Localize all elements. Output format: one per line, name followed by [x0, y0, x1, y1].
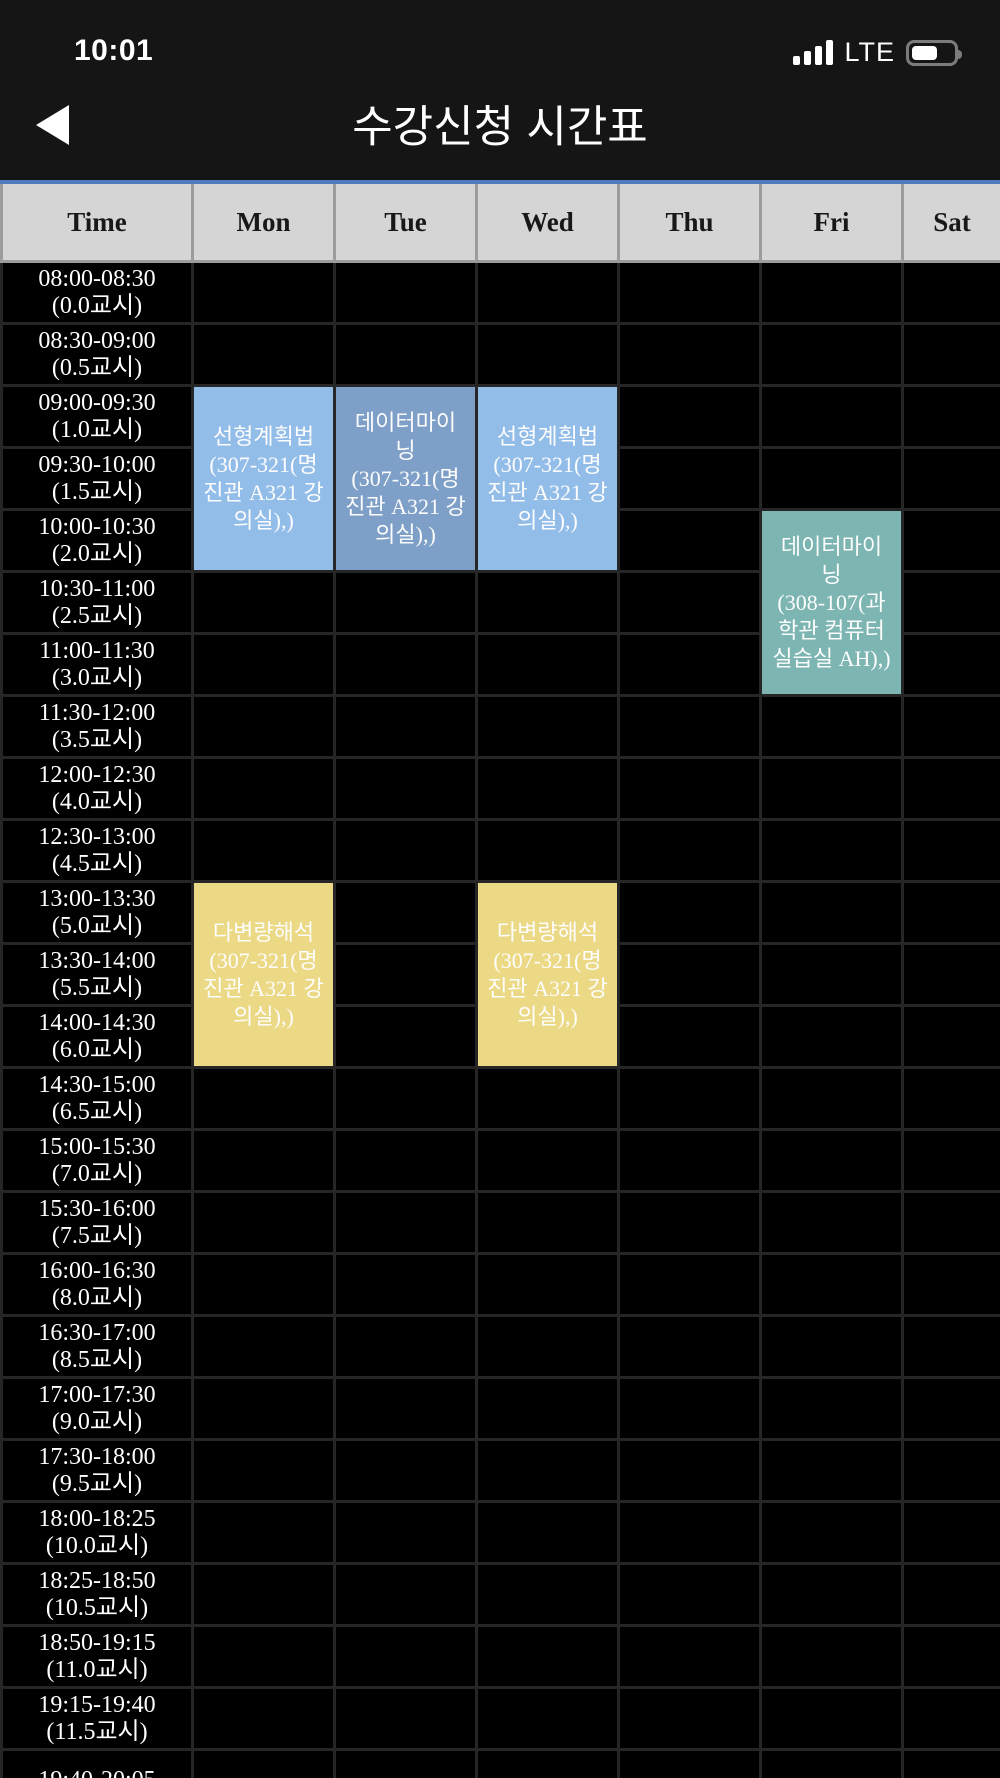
empty-cell — [193, 1564, 335, 1626]
time-range-label: 19:15-19:40 — [3, 1692, 191, 1719]
period-label: (7.5교시) — [3, 1223, 191, 1250]
empty-cell — [477, 1378, 619, 1440]
time-slot-cell: 18:00-18:25(10.0교시) — [2, 1502, 193, 1564]
status-bar: 10:01 LTE — [0, 0, 1000, 70]
empty-cell — [619, 1502, 761, 1564]
time-range-label: 13:00-13:30 — [3, 886, 191, 913]
period-label: (5.5교시) — [3, 975, 191, 1002]
empty-cell — [903, 1564, 1000, 1626]
time-range-label: 10:30-11:00 — [3, 576, 191, 603]
empty-cell — [619, 386, 761, 448]
empty-cell — [335, 1130, 477, 1192]
period-label: (7.0교시) — [3, 1161, 191, 1188]
empty-cell — [761, 696, 903, 758]
empty-cell — [619, 634, 761, 696]
empty-cell — [193, 696, 335, 758]
empty-cell — [619, 510, 761, 572]
time-slot-cell: 12:00-12:30(4.0교시) — [2, 758, 193, 820]
time-slot-cell: 10:00-10:30(2.0교시) — [2, 510, 193, 572]
empty-cell — [619, 1378, 761, 1440]
empty-cell — [335, 1192, 477, 1254]
time-slot-cell: 16:00-16:30(8.0교시) — [2, 1254, 193, 1316]
empty-cell — [903, 262, 1000, 324]
empty-cell — [477, 1750, 619, 1778]
course-title: 선형계획법 — [487, 423, 608, 451]
column-header-tue: Tue — [335, 182, 477, 262]
empty-cell — [903, 634, 1000, 696]
timetable-scroll-area[interactable]: TimeMonTueWedThuFriSat 08:00-08:30(0.0교시… — [0, 180, 1000, 1778]
period-label: (10.5교시) — [3, 1595, 191, 1622]
empty-cell — [903, 448, 1000, 510]
column-header-mon: Mon — [193, 182, 335, 262]
empty-cell — [619, 1006, 761, 1068]
empty-cell — [903, 1316, 1000, 1378]
time-slot-cell: 09:00-09:30(1.0교시) — [2, 386, 193, 448]
time-slot-cell: 09:30-10:00(1.5교시) — [2, 448, 193, 510]
empty-cell — [619, 696, 761, 758]
column-header-wed: Wed — [477, 182, 619, 262]
period-label: (4.0교시) — [3, 789, 191, 816]
empty-cell — [335, 262, 477, 324]
empty-cell — [903, 1378, 1000, 1440]
period-label: (10.0교시) — [3, 1533, 191, 1560]
empty-cell — [193, 1254, 335, 1316]
empty-cell — [903, 1006, 1000, 1068]
empty-cell — [903, 696, 1000, 758]
time-range-label: 09:00-09:30 — [3, 390, 191, 417]
empty-cell — [619, 882, 761, 944]
empty-cell — [903, 758, 1000, 820]
time-slot-cell: 12:30-13:00(4.5교시) — [2, 820, 193, 882]
period-label: (6.5교시) — [3, 1099, 191, 1126]
empty-cell — [761, 944, 903, 1006]
empty-cell — [477, 1254, 619, 1316]
empty-cell — [761, 1688, 903, 1750]
empty-cell — [477, 1626, 619, 1688]
empty-cell — [761, 1440, 903, 1502]
battery-icon — [906, 40, 958, 66]
empty-cell — [761, 758, 903, 820]
period-label: (4.5교시) — [3, 851, 191, 878]
empty-cell — [335, 1440, 477, 1502]
empty-cell — [903, 1502, 1000, 1564]
course-block[interactable]: 선형계획법(307-321(명진관 A321 강의실),) — [193, 386, 335, 572]
empty-cell — [193, 262, 335, 324]
empty-cell — [335, 1564, 477, 1626]
empty-cell — [619, 1254, 761, 1316]
empty-cell — [619, 1192, 761, 1254]
empty-cell — [477, 1564, 619, 1626]
empty-cell — [335, 1688, 477, 1750]
empty-cell — [477, 324, 619, 386]
empty-cell — [193, 1068, 335, 1130]
empty-cell — [761, 324, 903, 386]
column-header-time: Time — [2, 182, 193, 262]
empty-cell — [193, 1440, 335, 1502]
empty-cell — [477, 1316, 619, 1378]
period-label: (1.0교시) — [3, 417, 191, 444]
time-range-label: 11:00-11:30 — [3, 638, 191, 665]
empty-cell — [477, 634, 619, 696]
status-time: 10:01 — [74, 34, 153, 70]
empty-cell — [477, 758, 619, 820]
time-range-label: 18:00-18:25 — [3, 1506, 191, 1533]
empty-cell — [477, 820, 619, 882]
time-range-label: 13:30-14:00 — [3, 948, 191, 975]
period-label: (8.0교시) — [3, 1285, 191, 1312]
empty-cell — [193, 572, 335, 634]
empty-cell — [761, 1192, 903, 1254]
time-slot-cell: 13:30-14:00(5.5교시) — [2, 944, 193, 1006]
time-range-label: 15:30-16:00 — [3, 1196, 191, 1223]
empty-cell — [619, 758, 761, 820]
course-block[interactable]: 다변량해석(307-321(명진관 A321 강의실),) — [193, 882, 335, 1068]
empty-cell — [335, 820, 477, 882]
period-label: (0.0교시) — [3, 293, 191, 320]
empty-cell — [903, 572, 1000, 634]
course-block[interactable]: 다변량해석(307-321(명진관 A321 강의실),) — [477, 882, 619, 1068]
time-slot-cell: 11:30-12:00(3.5교시) — [2, 696, 193, 758]
time-range-label: 15:00-15:30 — [3, 1134, 191, 1161]
empty-cell — [619, 944, 761, 1006]
empty-cell — [619, 1068, 761, 1130]
time-slot-cell: 18:50-19:15(11.0교시) — [2, 1626, 193, 1688]
column-header-thu: Thu — [619, 182, 761, 262]
empty-cell — [193, 1750, 335, 1778]
empty-cell — [761, 1130, 903, 1192]
course-location: (308-107(과학관 컴퓨터실습실 AH),) — [771, 589, 892, 673]
time-range-label: 14:30-15:00 — [3, 1072, 191, 1099]
period-label: (6.0교시) — [3, 1037, 191, 1064]
time-slot-cell: 17:00-17:30(9.0교시) — [2, 1378, 193, 1440]
empty-cell — [335, 696, 477, 758]
empty-cell — [335, 758, 477, 820]
period-label: (11.0교시) — [3, 1657, 191, 1684]
time-range-label: 18:50-19:15 — [3, 1630, 191, 1657]
status-icons: LTE — [793, 37, 958, 70]
empty-cell — [903, 1192, 1000, 1254]
time-range-label: 17:30-18:00 — [3, 1444, 191, 1471]
empty-cell — [335, 1006, 477, 1068]
empty-cell — [619, 1688, 761, 1750]
empty-cell — [477, 1440, 619, 1502]
period-label: (3.0교시) — [3, 665, 191, 692]
time-range-label: 14:00-14:30 — [3, 1010, 191, 1037]
time-slot-cell: 13:00-13:30(5.0교시) — [2, 882, 193, 944]
course-title: 다변량해석 — [203, 919, 324, 947]
period-label: (3.5교시) — [3, 727, 191, 754]
period-label: (9.5교시) — [3, 1471, 191, 1498]
time-range-label: 11:30-12:00 — [3, 700, 191, 727]
cellular-signal-icon — [793, 40, 833, 65]
empty-cell — [761, 820, 903, 882]
course-title: 데이터마이닝 — [771, 533, 892, 589]
empty-cell — [903, 1130, 1000, 1192]
empty-cell — [903, 1068, 1000, 1130]
empty-cell — [335, 1316, 477, 1378]
time-range-label: 09:30-10:00 — [3, 452, 191, 479]
empty-cell — [335, 1068, 477, 1130]
empty-cell — [761, 1626, 903, 1688]
time-range-label: 12:00-12:30 — [3, 762, 191, 789]
empty-cell — [761, 386, 903, 448]
empty-cell — [619, 1316, 761, 1378]
empty-cell — [193, 820, 335, 882]
time-slot-cell: 10:30-11:00(2.5교시) — [2, 572, 193, 634]
course-title: 데이터마이닝 — [345, 409, 466, 465]
period-label: (1.5교시) — [3, 479, 191, 506]
empty-cell — [477, 1068, 619, 1130]
time-slot-cell: 18:25-18:50(10.5교시) — [2, 1564, 193, 1626]
time-slot-cell: 14:00-14:30(6.0교시) — [2, 1006, 193, 1068]
empty-cell — [619, 572, 761, 634]
period-label: (5.0교시) — [3, 913, 191, 940]
time-range-label: 16:00-16:30 — [3, 1258, 191, 1285]
battery-nub — [958, 50, 962, 59]
time-range-label: 08:00-08:30 — [3, 266, 191, 293]
empty-cell — [903, 1750, 1000, 1778]
time-range-label: 10:00-10:30 — [3, 514, 191, 541]
course-title: 다변량해석 — [487, 919, 608, 947]
empty-cell — [477, 696, 619, 758]
time-slot-cell: 08:00-08:30(0.0교시) — [2, 262, 193, 324]
empty-cell — [619, 1440, 761, 1502]
time-slot-cell: 11:00-11:30(3.0교시) — [2, 634, 193, 696]
empty-cell — [761, 1502, 903, 1564]
course-location: (307-321(명진관 A321 강의실),) — [345, 465, 466, 549]
empty-cell — [903, 1440, 1000, 1502]
empty-cell — [903, 1626, 1000, 1688]
empty-cell — [335, 324, 477, 386]
battery-fill — [912, 46, 937, 60]
time-slot-cell: 08:30-09:00(0.5교시) — [2, 324, 193, 386]
course-location: (307-321(명진관 A321 강의실),) — [203, 947, 324, 1031]
time-slot-cell: 15:00-15:30(7.0교시) — [2, 1130, 193, 1192]
empty-cell — [335, 1378, 477, 1440]
empty-cell — [335, 572, 477, 634]
empty-cell — [619, 262, 761, 324]
time-slot-cell: 17:30-18:00(9.5교시) — [2, 1440, 193, 1502]
course-location: (307-321(명진관 A321 강의실),) — [487, 451, 608, 535]
course-title: 선형계획법 — [203, 423, 324, 451]
period-label: (2.0교시) — [3, 541, 191, 568]
empty-cell — [761, 1378, 903, 1440]
time-range-label: 12:30-13:00 — [3, 824, 191, 851]
time-range-label: 18:25-18:50 — [3, 1568, 191, 1595]
empty-cell — [619, 1564, 761, 1626]
nav-bar: 수강신청 시간표 — [0, 70, 1000, 180]
empty-cell — [193, 758, 335, 820]
screen: 10:01 LTE 수강신청 시간표 TimeMonTueWedThuFriSa… — [0, 0, 1000, 1778]
empty-cell — [193, 1688, 335, 1750]
empty-cell — [477, 262, 619, 324]
empty-cell — [903, 510, 1000, 572]
time-range-label: 08:30-09:00 — [3, 328, 191, 355]
empty-cell — [335, 944, 477, 1006]
network-type-label: LTE — [844, 37, 895, 68]
empty-cell — [761, 1254, 903, 1316]
empty-cell — [761, 1750, 903, 1778]
empty-cell — [477, 1688, 619, 1750]
empty-cell — [193, 634, 335, 696]
empty-cell — [477, 1130, 619, 1192]
empty-cell — [761, 1068, 903, 1130]
empty-cell — [193, 1378, 335, 1440]
empty-cell — [335, 634, 477, 696]
empty-cell — [193, 1502, 335, 1564]
period-label: (9.0교시) — [3, 1409, 191, 1436]
empty-cell — [477, 572, 619, 634]
page-title: 수강신청 시간표 — [0, 90, 1000, 154]
course-block[interactable]: 데이터마이닝(308-107(과학관 컴퓨터실습실 AH),) — [761, 510, 903, 696]
empty-cell — [619, 1750, 761, 1778]
empty-cell — [903, 1254, 1000, 1316]
empty-cell — [477, 1192, 619, 1254]
empty-cell — [477, 1502, 619, 1564]
time-slot-cell: 16:30-17:00(8.5교시) — [2, 1316, 193, 1378]
empty-cell — [903, 324, 1000, 386]
empty-cell — [903, 882, 1000, 944]
course-location: (307-321(명진관 A321 강의실),) — [487, 947, 608, 1031]
empty-cell — [761, 882, 903, 944]
empty-cell — [903, 944, 1000, 1006]
period-label: (2.5교시) — [3, 603, 191, 630]
timetable-header: TimeMonTueWedThuFriSat — [2, 182, 1000, 262]
timetable: TimeMonTueWedThuFriSat 08:00-08:30(0.0교시… — [0, 180, 1000, 1778]
empty-cell — [193, 324, 335, 386]
empty-cell — [619, 1626, 761, 1688]
period-label: (8.5교시) — [3, 1347, 191, 1374]
empty-cell — [903, 1688, 1000, 1750]
period-label: (0.5교시) — [3, 355, 191, 382]
time-range-label: 16:30-17:00 — [3, 1320, 191, 1347]
empty-cell — [903, 820, 1000, 882]
time-range-label: 17:00-17:30 — [3, 1382, 191, 1409]
empty-cell — [619, 324, 761, 386]
empty-cell — [193, 1130, 335, 1192]
time-range-label: 19:40-20:05 — [3, 1767, 191, 1778]
course-block[interactable]: 선형계획법(307-321(명진관 A321 강의실),) — [477, 386, 619, 572]
period-label: (11.5교시) — [3, 1719, 191, 1746]
empty-cell — [761, 1564, 903, 1626]
empty-cell — [619, 448, 761, 510]
empty-cell — [335, 882, 477, 944]
time-slot-cell: 15:30-16:00(7.5교시) — [2, 1192, 193, 1254]
empty-cell — [335, 1502, 477, 1564]
empty-cell — [761, 448, 903, 510]
time-slot-cell: 19:15-19:40(11.5교시) — [2, 1688, 193, 1750]
empty-cell — [193, 1316, 335, 1378]
time-slot-cell: 19:40-20:05 — [2, 1750, 193, 1778]
empty-cell — [193, 1192, 335, 1254]
empty-cell — [193, 1626, 335, 1688]
course-block[interactable]: 데이터마이닝(307-321(명진관 A321 강의실),) — [335, 386, 477, 572]
empty-cell — [619, 820, 761, 882]
column-header-sat: Sat — [903, 182, 1000, 262]
empty-cell — [761, 1006, 903, 1068]
empty-cell — [335, 1254, 477, 1316]
time-slot-cell: 14:30-15:00(6.5교시) — [2, 1068, 193, 1130]
empty-cell — [903, 386, 1000, 448]
empty-cell — [619, 1130, 761, 1192]
empty-cell — [761, 1316, 903, 1378]
empty-cell — [335, 1750, 477, 1778]
course-location: (307-321(명진관 A321 강의실),) — [203, 451, 324, 535]
empty-cell — [335, 1626, 477, 1688]
empty-cell — [761, 262, 903, 324]
column-header-fri: Fri — [761, 182, 903, 262]
